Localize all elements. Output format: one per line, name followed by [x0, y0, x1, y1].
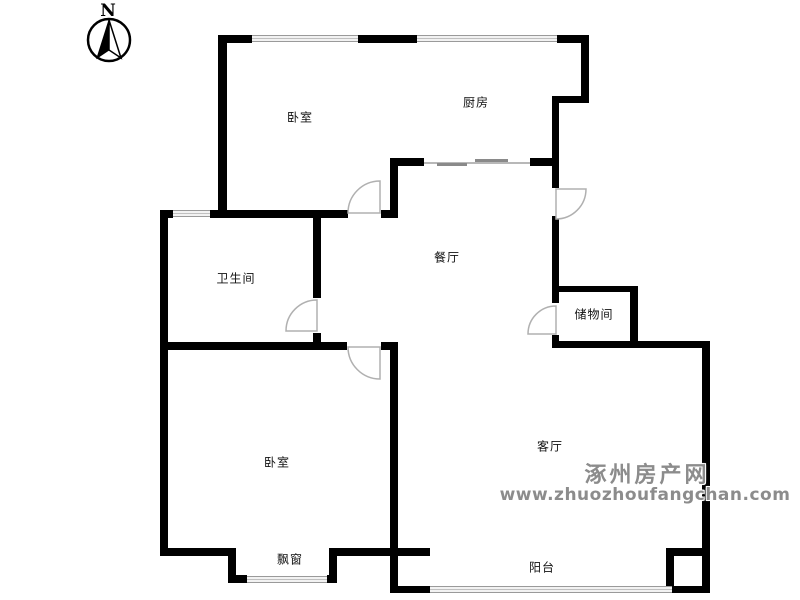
door-arc-bedroom-bottom: [348, 347, 380, 379]
door-arc-storage: [528, 306, 556, 334]
door-arc-bathroom: [286, 300, 317, 331]
door-arc-entry: [556, 189, 586, 219]
door-arc-bedroom-top: [348, 181, 380, 213]
floor-plan: N 卧室 厨房 卫生间 餐厅 储物间 卧室 客厅 飘窗 阳台 涿州房产网 www…: [0, 0, 800, 600]
compass-icon: [88, 19, 130, 61]
door-and-compass-overlay: [0, 0, 800, 600]
watermark-site-url: www.zhuozhoufangchan.com: [500, 485, 791, 505]
